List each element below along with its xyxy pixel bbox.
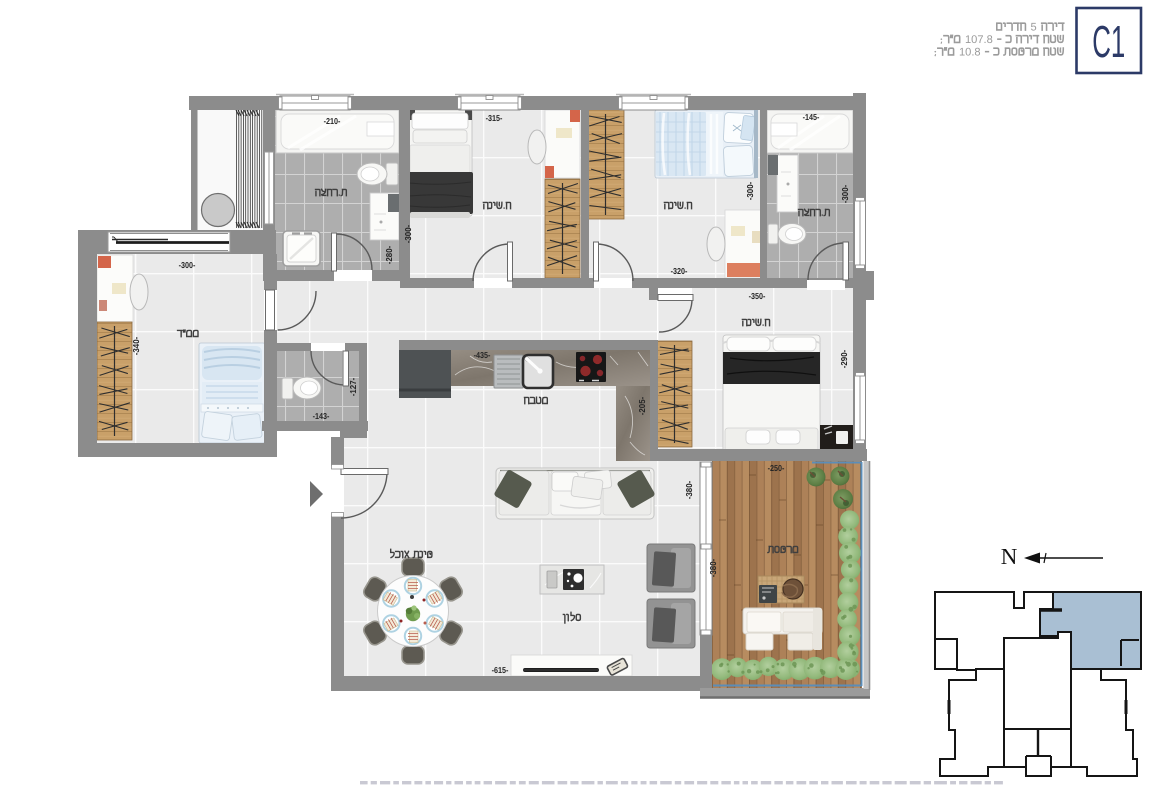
svg-text:N: N [1001,544,1018,569]
svg-text:-350-: -350- [749,291,766,301]
svg-text:-300-: -300- [745,182,755,201]
svg-text:107.8: 107.8 [965,34,993,46]
svg-text:-615-: -615- [492,665,509,675]
svg-text:-300-: -300- [403,225,413,244]
svg-text:-280-: -280- [384,246,394,265]
svg-text:C1: C1 [1092,16,1125,67]
svg-text:-205-: -205- [637,397,647,416]
svg-text:-290-: -290- [839,350,849,369]
svg-text:-250-: -250- [768,463,785,473]
svg-text:-315-: -315- [486,113,503,123]
svg-text:5: 5 [1031,22,1037,34]
svg-text:-380-: -380- [708,559,718,578]
svg-text:-127-: -127- [348,378,358,397]
svg-text:-380-: -380- [684,481,694,500]
svg-text:-300-: -300- [840,185,850,204]
svg-text:10.8: 10.8 [959,47,981,59]
svg-text:-145-: -145- [803,112,820,122]
svg-text:-300-: -300- [179,260,196,270]
svg-text:-210-: -210- [324,116,341,126]
svg-text:-435-: -435- [474,350,491,360]
svg-text:-320-: -320- [671,266,688,276]
svg-text:-340-: -340- [131,337,141,356]
svg-text:-143-: -143- [313,411,330,421]
